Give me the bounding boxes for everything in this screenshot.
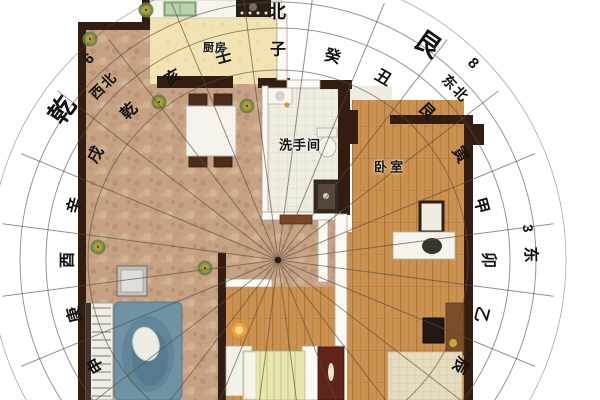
compass-mountain-癸: 癸: [321, 45, 343, 68]
wall-bedroom2-top: [226, 279, 272, 287]
stove-knob: [249, 12, 252, 15]
wall-bath-left: [262, 86, 268, 214]
compass-mountain-甲: 甲: [471, 195, 493, 215]
piano-shelf: [86, 303, 113, 400]
plant-icon: [139, 3, 154, 18]
compass-label-3: 3: [520, 223, 537, 235]
fengshui-floorplan: 子癸丑艮寅甲卯乙辰壬亥乾戌辛酉庚申北乾6西北艮8东北3东 厨房 洗手间 卧室: [0, 0, 600, 400]
compass-label-艮: 艮: [409, 24, 449, 65]
stove-knob: [257, 12, 260, 15]
compass-mountain-庚: 庚: [63, 304, 85, 324]
compass-label-北: 北: [268, 2, 288, 22]
room-label-kitchen: 厨房: [203, 39, 227, 55]
compass-mountain-酉: 酉: [59, 252, 77, 268]
compass-label-8: 8: [464, 54, 483, 73]
floor-lamp-core: [235, 326, 243, 334]
compass-mountain-乙: 乙: [471, 304, 492, 324]
plant-icon: [83, 32, 98, 47]
piano-edge: [86, 303, 91, 400]
plant-icon: [91, 240, 106, 255]
bed-pillow: [244, 352, 256, 399]
bath-basin: [275, 91, 285, 101]
dining-chair: [189, 155, 207, 167]
compass-mountain-子: 子: [270, 41, 286, 59]
floorplan-svg: 子癸丑艮寅甲卯乙辰壬亥乾戌辛酉庚申北乾6西北艮8东北3东: [0, 0, 600, 400]
compass-label-乾: 乾: [42, 89, 83, 129]
dining-chair: [214, 94, 232, 106]
blue-rug: [114, 302, 182, 400]
wall-bath-top: [287, 80, 320, 88]
plant-icon: [198, 261, 213, 276]
wall-bath-right: [338, 87, 350, 215]
door-handle: [328, 363, 334, 381]
dining-chair: [214, 155, 232, 167]
bedroom-dresser: [420, 202, 443, 232]
compass-label-东: 东: [521, 246, 540, 264]
compass-center-dot: [275, 257, 281, 263]
wall-hall-right: [318, 220, 328, 282]
side-table-top: [121, 270, 143, 292]
room-label-bedroom: 卧室: [374, 157, 406, 176]
plant-icon: [240, 99, 255, 114]
stove-burner: [249, 3, 257, 11]
wall-bedroom2-left: [218, 253, 226, 400]
room-label-bathroom: 洗手间: [279, 135, 321, 154]
compass-mountain-卯: 卯: [480, 252, 498, 268]
sink-basin-right: [181, 4, 194, 14]
dining-table: [186, 106, 236, 156]
gold-knob: [285, 103, 290, 108]
stove-knob: [241, 12, 244, 15]
dining-chair: [189, 94, 207, 106]
wall-bedroom-left-stub: [347, 110, 358, 144]
compass-mountain-丑: 丑: [372, 66, 395, 90]
